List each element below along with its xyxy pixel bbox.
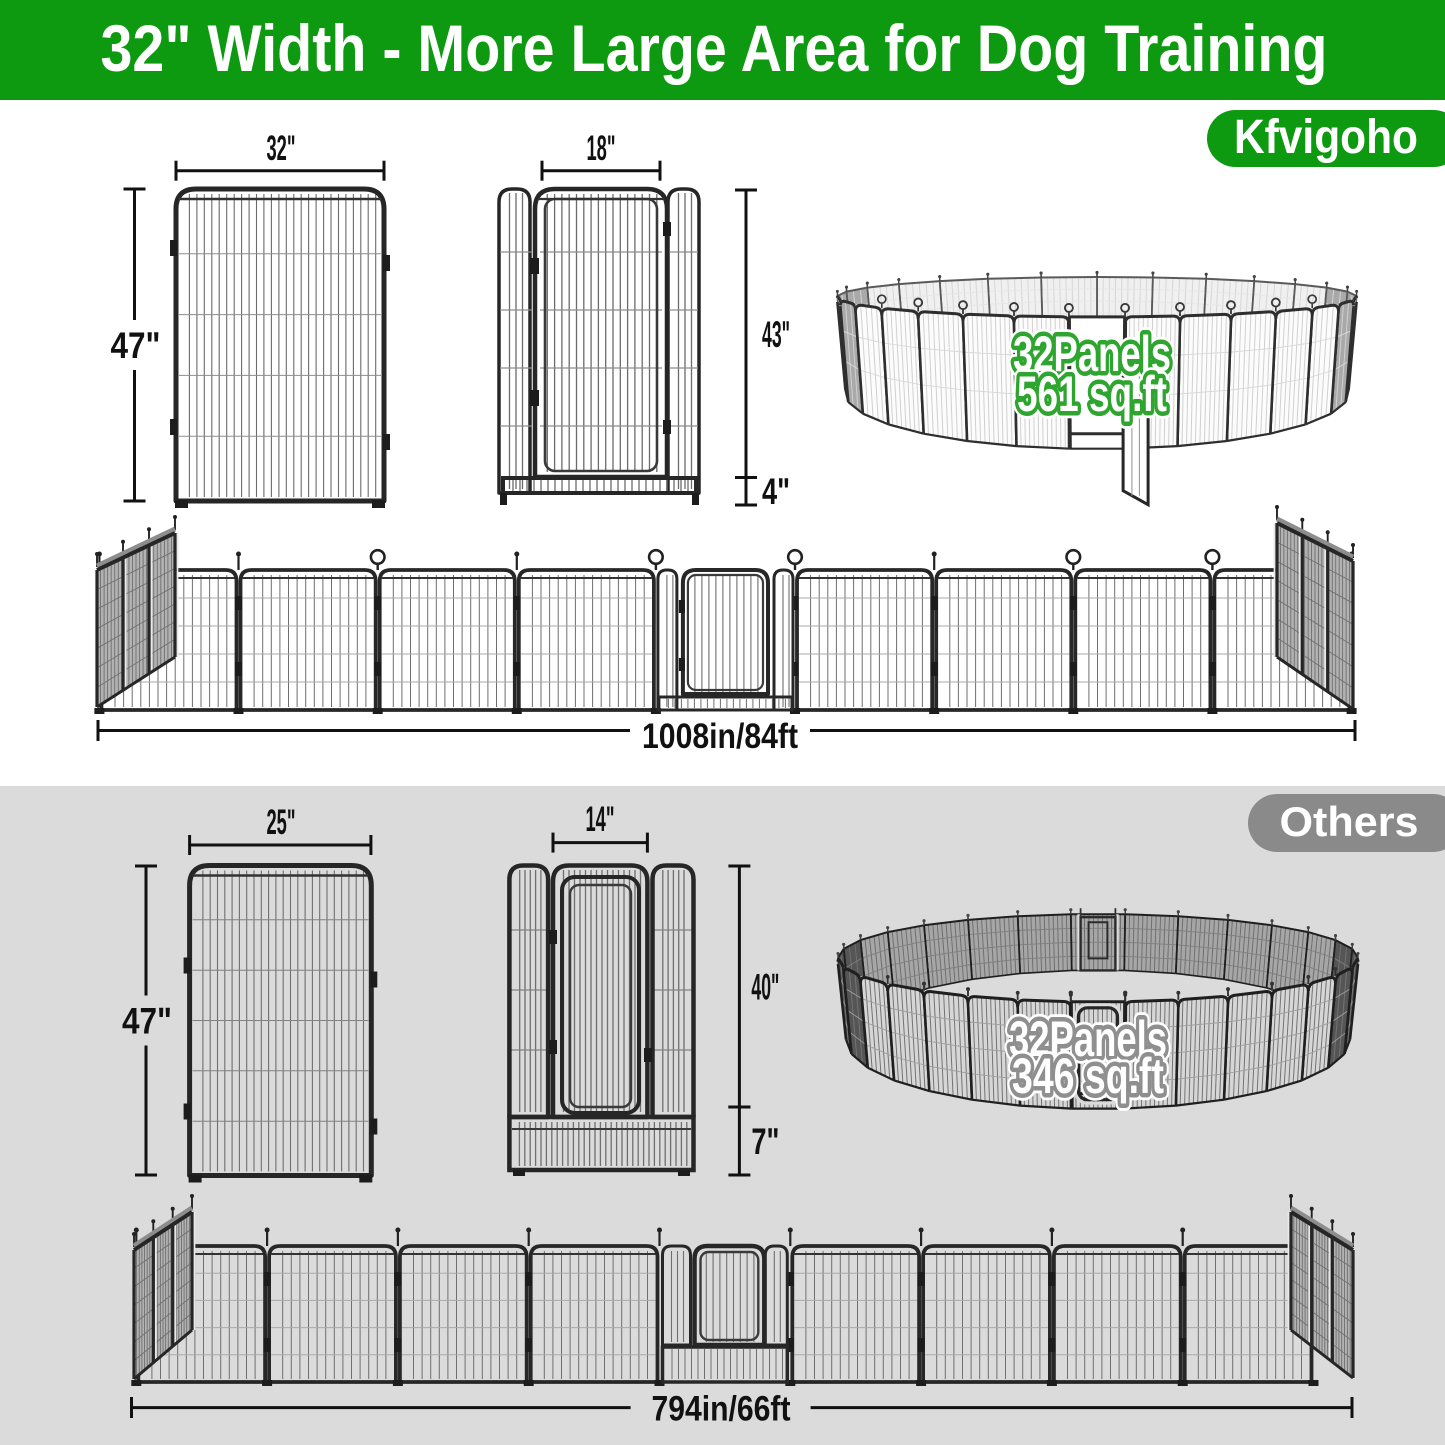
- svg-text:794in/66ft: 794in/66ft: [652, 1390, 791, 1429]
- svg-text:561 sq.ft: 561 sq.ft: [1017, 366, 1167, 422]
- svg-text:Kfvigoho: Kfvigoho: [1234, 111, 1418, 164]
- svg-text:32": 32": [267, 129, 296, 168]
- svg-text:40": 40": [751, 967, 779, 1008]
- svg-text:47": 47": [111, 325, 161, 366]
- svg-text:32" Width - More Large Area fo: 32" Width - More Large Area for Dog Trai…: [101, 11, 1328, 85]
- svg-text:346 sq.ft: 346 sq.ft: [1012, 1048, 1164, 1104]
- svg-text:7": 7": [751, 1121, 779, 1162]
- svg-text:18": 18": [587, 129, 616, 168]
- svg-text:14": 14": [586, 800, 615, 839]
- svg-text:Others: Others: [1280, 798, 1419, 845]
- svg-text:1008in/84ft: 1008in/84ft: [642, 717, 798, 756]
- svg-text:4": 4": [762, 471, 790, 512]
- svg-text:47": 47": [122, 1001, 172, 1042]
- svg-text:43": 43": [762, 314, 790, 355]
- svg-text:25": 25": [267, 803, 296, 842]
